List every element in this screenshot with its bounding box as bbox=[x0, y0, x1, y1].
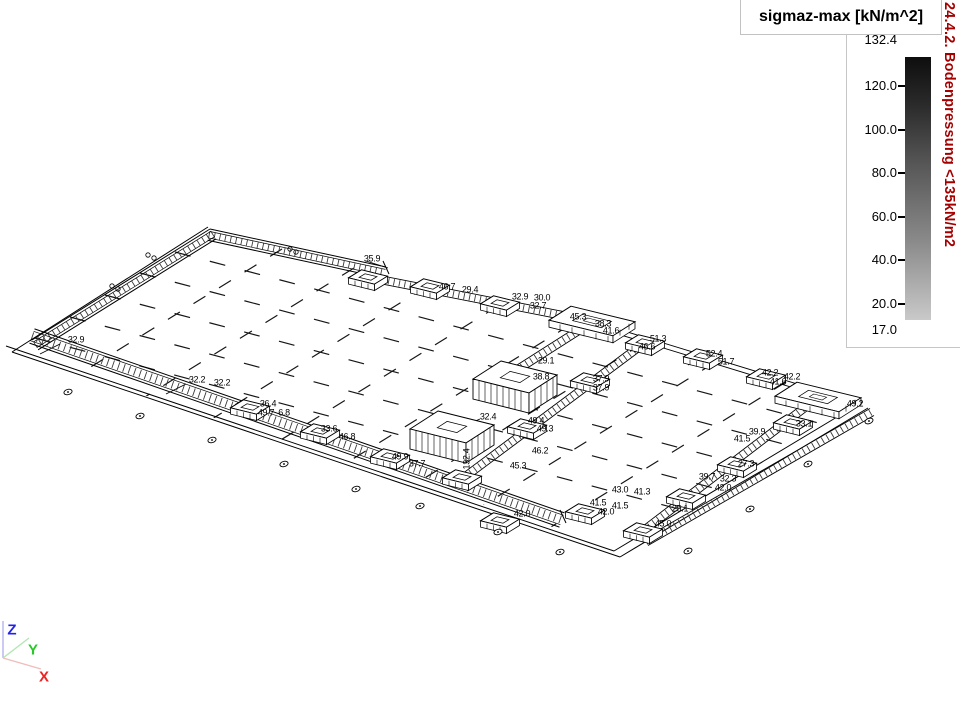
legend-title: sigmaz-max [kN/m^2] bbox=[740, 0, 942, 35]
legend-tick-label: 40.0 bbox=[838, 252, 897, 267]
legend-tick-mark bbox=[898, 85, 905, 87]
legend-tick-label: 120.0 bbox=[838, 78, 897, 93]
legend-colorbar bbox=[905, 57, 931, 320]
legend-tick-mark bbox=[898, 259, 905, 261]
axis-y-label: Y bbox=[28, 642, 38, 659]
legend-tick-mark bbox=[898, 303, 905, 305]
legend-tick-label: 80.0 bbox=[838, 165, 897, 180]
legend-tick-label: 20.0 bbox=[838, 296, 897, 311]
slab-outline bbox=[6, 227, 868, 557]
axis-z-label: Z bbox=[7, 622, 16, 639]
section-heading-vertical: 24.4.2. Bodenpressung <135kN/m2 bbox=[941, 2, 957, 718]
axis-x-label: X bbox=[39, 669, 49, 686]
legend-max-value: 132.4 bbox=[838, 32, 897, 47]
foundation-plan-drawing bbox=[0, 0, 960, 720]
viewport: 32.932.232.236.449.76.833.646.849.937.73… bbox=[0, 0, 960, 720]
legend-tick-mark bbox=[898, 172, 905, 174]
legend-tick-label: 60.0 bbox=[838, 209, 897, 224]
legend-tick-mark bbox=[898, 216, 905, 218]
legend-min-value: 17.0 bbox=[838, 322, 897, 337]
foundation-beams bbox=[371, 274, 874, 545]
legend-tick-label: 100.0 bbox=[838, 122, 897, 137]
legend-tick-mark bbox=[898, 129, 905, 131]
